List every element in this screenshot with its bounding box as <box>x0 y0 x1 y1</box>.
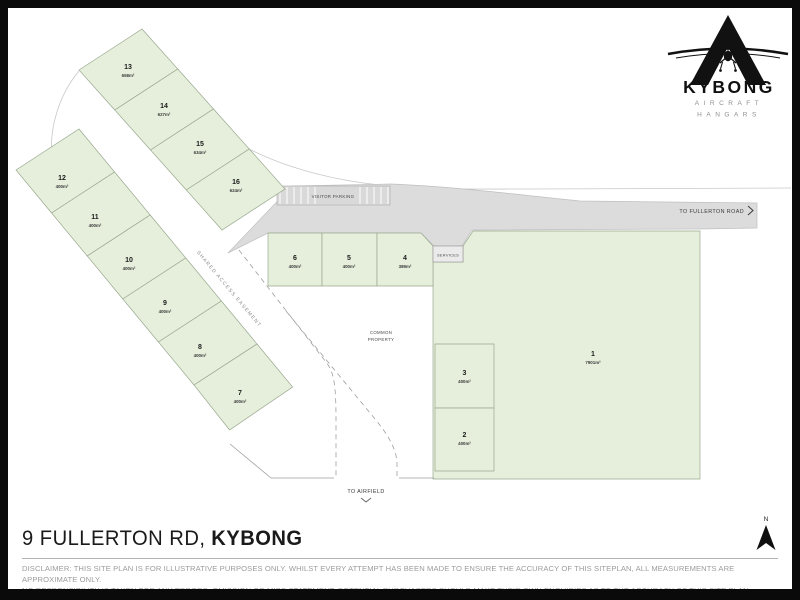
lot-10-number: 10 <box>125 257 133 264</box>
footer-divider <box>22 558 778 559</box>
lot-11-area: 400m² <box>89 223 102 228</box>
page-title: 9 FULLERTON RD,KYBONG <box>22 527 303 551</box>
frame-bottom <box>0 589 800 600</box>
lot-10-area: 400m² <box>123 266 136 271</box>
north-arrow: N <box>757 516 776 550</box>
disclaimer-line-1: DISCLAIMER: THIS SITE PLAN IS FOR ILLUST… <box>22 563 778 585</box>
lot-15-area: 634m² <box>194 150 207 155</box>
address-suburb: KYBONG <box>211 527 302 550</box>
north-needle-icon <box>757 525 776 550</box>
frame-right <box>792 0 800 600</box>
frame-left <box>0 0 8 600</box>
siteplan-page: VISITOR PARKING TO FULLERTON ROAD SERVIC… <box>0 0 800 600</box>
logo-aircraft-a-icon <box>668 15 788 85</box>
lot-16-number: 16 <box>232 179 240 186</box>
address-street: 9 FULLERTON RD, <box>22 527 205 550</box>
lot-2-number: 2 <box>463 432 467 439</box>
lot-5-number: 5 <box>347 255 351 262</box>
lot-15-number: 15 <box>196 141 204 148</box>
logo-subtitle-hangars: HANGARS <box>697 112 761 119</box>
lot-16-area: 624m² <box>230 188 243 193</box>
lot-4-number: 4 <box>403 255 407 262</box>
common-property-dashed-east <box>286 311 397 477</box>
lot-12-number: 12 <box>58 175 66 182</box>
south-boundary-west <box>230 444 334 478</box>
frame-top <box>0 0 800 8</box>
lot-14-area: 627m² <box>158 112 171 117</box>
lot-2-area: 400m² <box>458 441 471 446</box>
site-plan: VISITOR PARKING TO FULLERTON ROAD SERVIC… <box>0 0 800 600</box>
visitor-parking-label: VISITOR PARKING <box>312 194 355 199</box>
lot-9-area: 400m² <box>159 309 172 314</box>
lot-9-number: 9 <box>163 300 167 307</box>
lot-1-area: 7901m² <box>585 360 601 365</box>
lot-2-shape <box>435 408 494 471</box>
services-label: SERVICES <box>437 253 459 258</box>
lot-5-area: 400m² <box>343 264 356 269</box>
to-fullerton-road-label: TO FULLERTON ROAD <box>679 209 744 215</box>
lot-1-number: 1 <box>591 351 595 358</box>
north-label: N <box>764 516 769 523</box>
logo: KYBONG AIRCRAFT HANGARS <box>668 15 788 119</box>
lot-12-area: 400m² <box>56 184 69 189</box>
lot-8-area: 400m² <box>194 353 207 358</box>
lot-11-number: 11 <box>91 214 99 221</box>
lot-4-area: 389m² <box>399 264 412 269</box>
lot-13-area: 658m² <box>122 73 135 78</box>
lot-6-number: 6 <box>293 255 297 262</box>
airfield-arrow-icon <box>361 498 371 502</box>
lot-13-number: 13 <box>124 64 132 71</box>
lot-8-number: 8 <box>198 344 202 351</box>
common-property-label-line2: PROPERTY <box>368 337 394 342</box>
lot-3-area: 400m² <box>458 379 471 384</box>
common-property-label-line1: COMMON <box>370 330 392 335</box>
lot-7-number: 7 <box>238 390 242 397</box>
lot-3-number: 3 <box>463 370 467 377</box>
lot-7-area: 400m² <box>234 399 247 404</box>
to-airfield-label: TO AIRFIELD <box>347 489 384 495</box>
lot-14-number: 14 <box>160 103 168 110</box>
lot-6-area: 400m² <box>289 264 302 269</box>
logo-wordmark: KYBONG <box>683 77 775 97</box>
logo-subtitle-aircraft: AIRCRAFT <box>695 100 764 107</box>
road-boundary-curve-east <box>249 149 791 189</box>
